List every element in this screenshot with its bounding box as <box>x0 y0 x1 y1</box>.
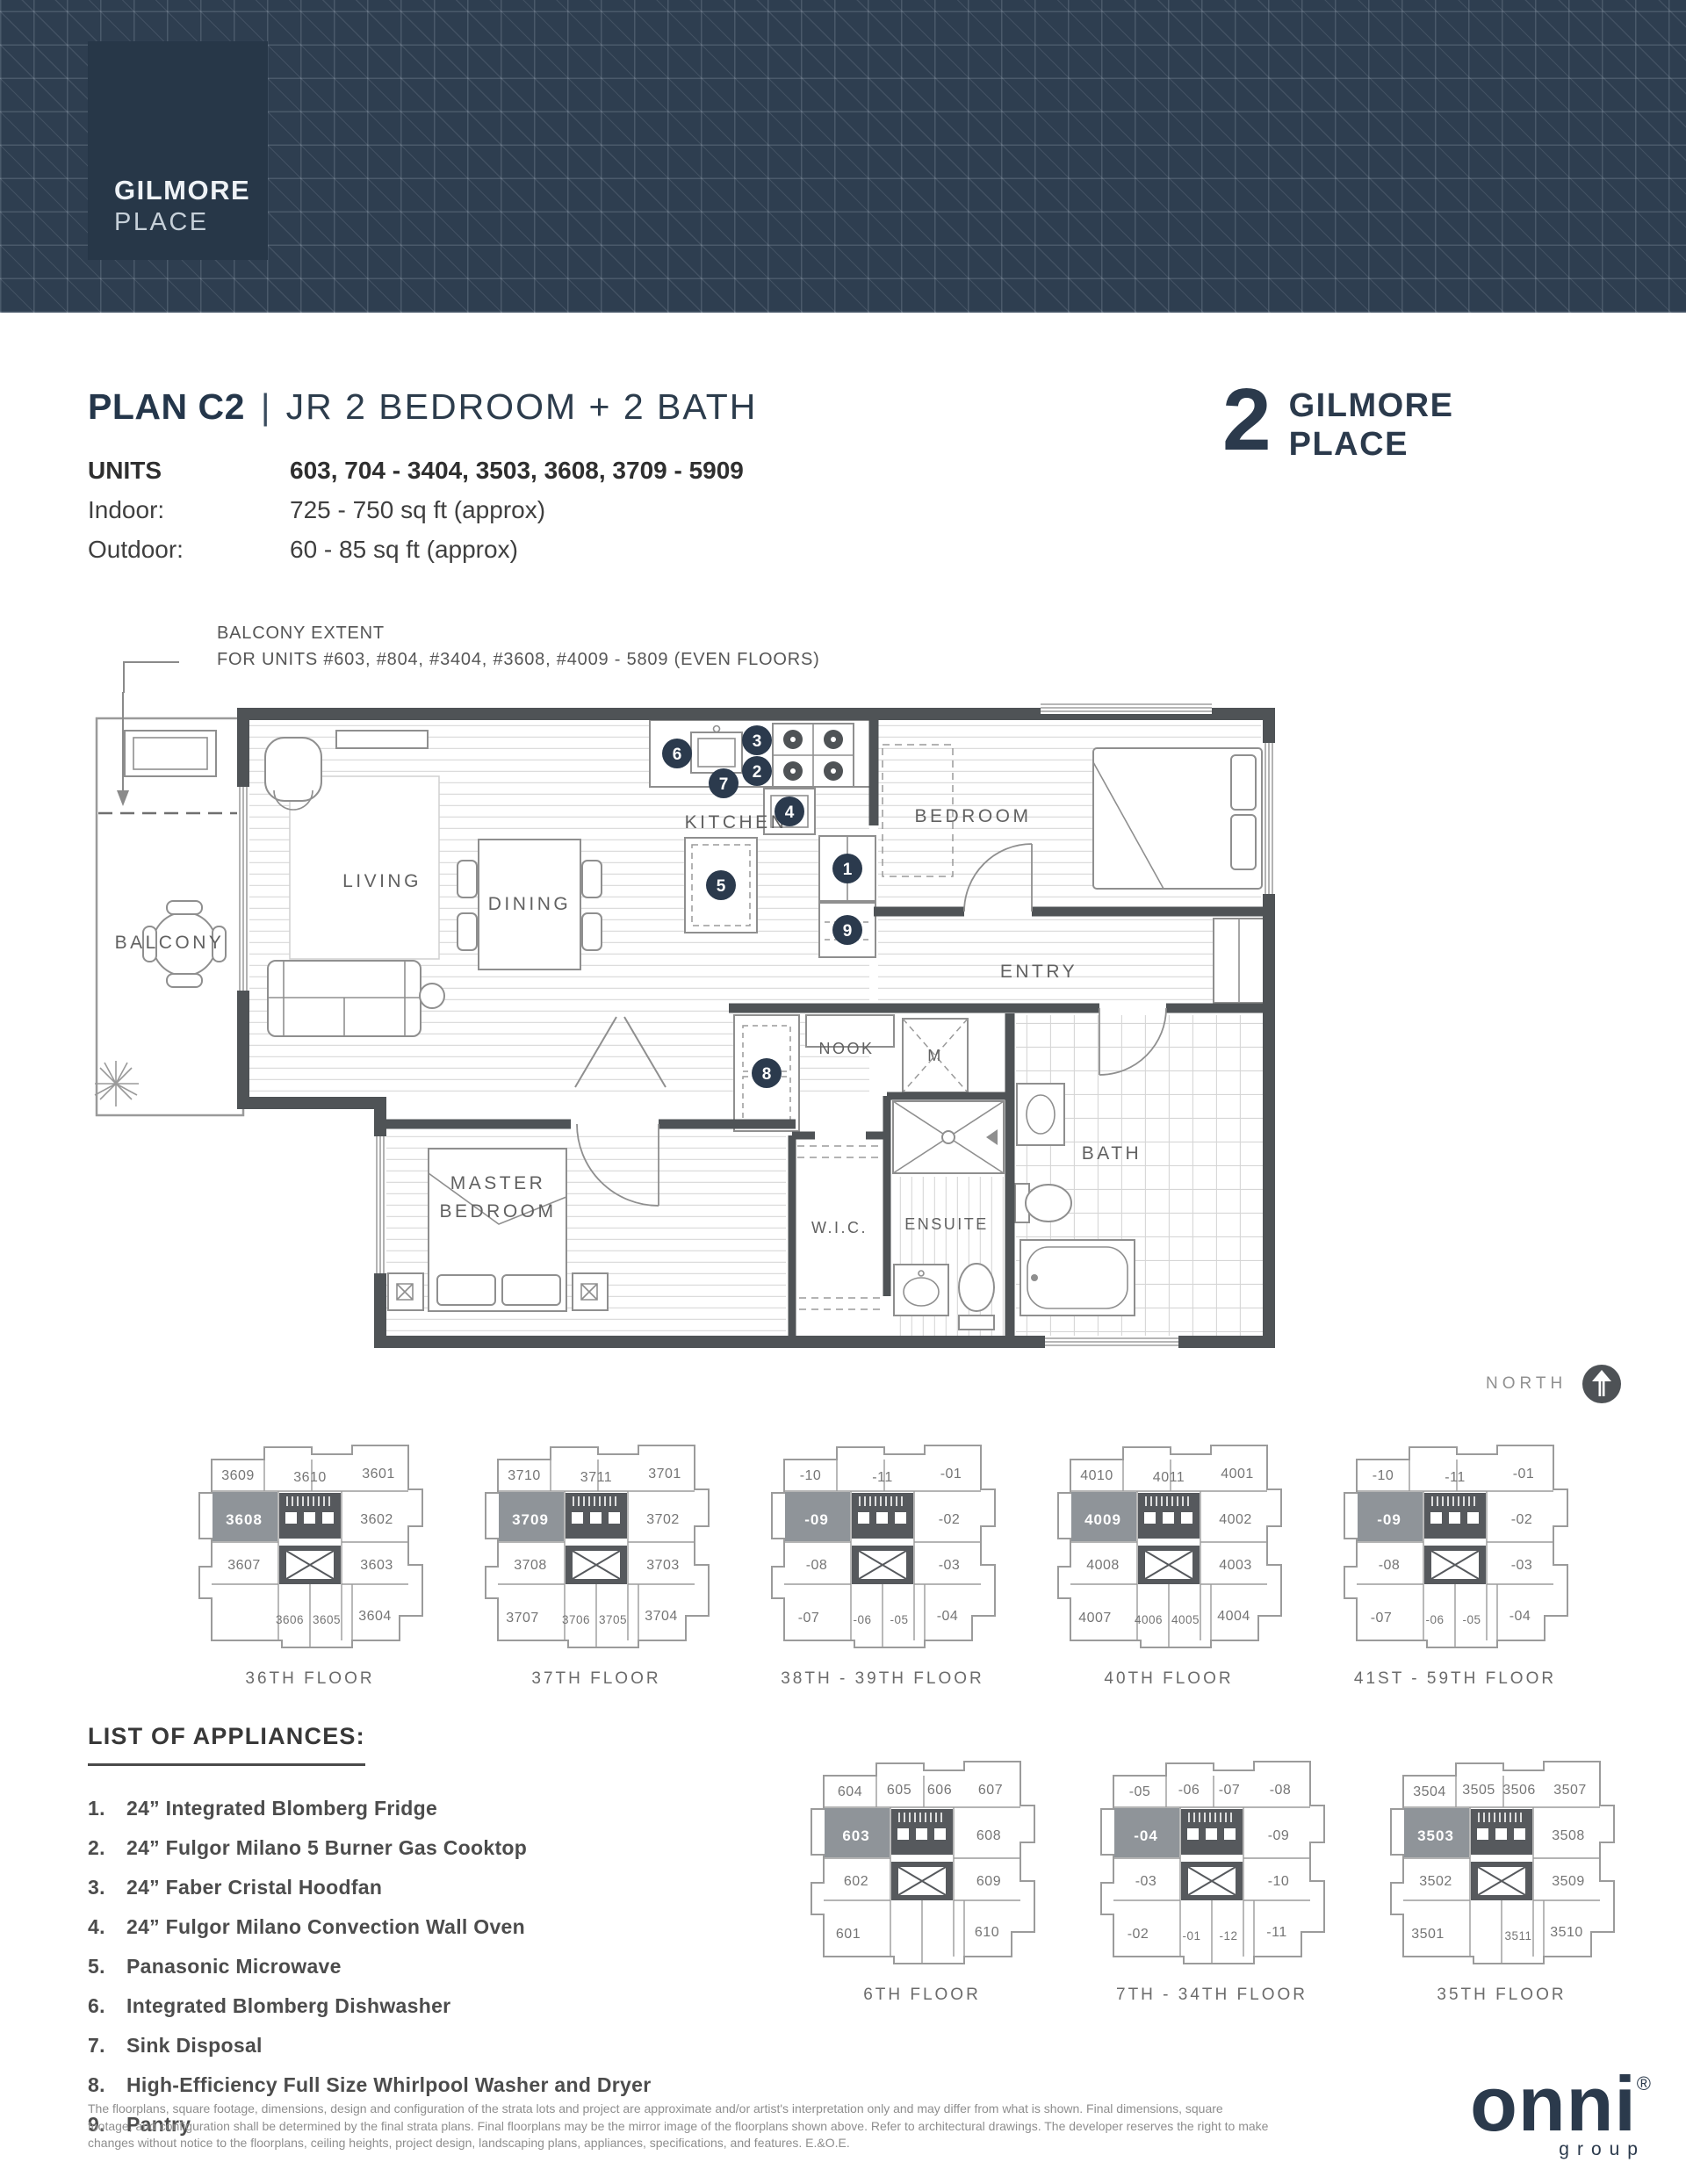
keyplan-floor-label: 35TH FLOOR <box>1370 1986 1633 2005</box>
dining-chair <box>582 861 602 897</box>
room-label-master-1: MASTER <box>450 1173 546 1193</box>
appliance-item: 4.24” Fulgor Milano Convection Wall Oven <box>88 1907 773 1947</box>
keyplan-unit-label: 4006 <box>1135 1613 1163 1626</box>
indoor-label: Indoor: <box>88 496 290 524</box>
room-label-dining: DINING <box>488 894 572 914</box>
north-label: NORTH <box>1486 1374 1567 1394</box>
keyplan-unit-label: -07 <box>1371 1611 1393 1625</box>
keyplan-unit-label: 4002 <box>1219 1512 1252 1527</box>
appliance-list: 1.24” Integrated Blomberg Fridge 2.24” F… <box>88 1789 773 2144</box>
keyplan: -10-11-01-09-02-08-03-07-06-05-0441ST - … <box>1323 1437 1587 1689</box>
keyplan-unit-label: 3610 <box>293 1470 327 1485</box>
keyplan-unit-label: -09 <box>1268 1828 1290 1843</box>
room-label-wic: W.I.C. <box>811 1219 868 1236</box>
keyplan-floor-label: 36TH FLOOR <box>178 1669 442 1689</box>
title-separator: | <box>261 386 270 427</box>
keyplan-unit-label: 3506 <box>1502 1783 1536 1798</box>
dining-chair <box>582 913 602 950</box>
keyplan-svg: -10-11-01-09-02-08-03-07-06-05-04 <box>1323 1437 1587 1654</box>
plan-specs: UNITS 603, 704 - 3404, 3503, 3608, 3709 … <box>88 457 744 575</box>
keyplan-unit-label: 608 <box>976 1828 1001 1843</box>
keyplan-unit-label: -05 <box>1462 1613 1481 1626</box>
ensuite-toilet <box>959 1264 994 1311</box>
keyplan: 6046056066076036086026096016106TH FLOOR <box>790 1753 1054 2005</box>
keyplan-unit-label: 3711 <box>580 1470 612 1485</box>
plan-title: PLAN C2|JR 2 BEDROOM + 2 BATH <box>88 386 757 428</box>
floorplan-sheet: GILMORE PLACE PLAN C2|JR 2 BEDROOM + 2 B… <box>0 0 1686 2184</box>
keyplan-svg: 3609361036013608360236073603360636053604 <box>178 1437 442 1654</box>
plan-name: PLAN C2 <box>88 386 245 427</box>
balcony-chair <box>167 901 202 914</box>
units-row: UNITS 603, 704 - 3404, 3503, 3608, 3709 … <box>88 457 744 485</box>
pillow <box>502 1275 560 1305</box>
appliance-item: 6.Integrated Blomberg Dishwasher <box>88 1986 773 2026</box>
plan-marker-4: 4 <box>775 796 804 826</box>
tower-name-line2: PLACE <box>1289 425 1454 464</box>
keyplan-unit-label: -07 <box>798 1611 820 1625</box>
svg-text:1: 1 <box>843 861 853 879</box>
tower-name-line1: GILMORE <box>1289 386 1454 425</box>
room-label-master-2: BEDROOM <box>439 1201 556 1222</box>
svg-text:5: 5 <box>717 877 726 896</box>
keyplan: 3710371137013709370237083703370737063705… <box>465 1437 728 1689</box>
north-arrow-icon <box>1581 1363 1623 1405</box>
units-value: 603, 704 - 3404, 3503, 3608, 3709 - 5909 <box>290 457 744 485</box>
keyplan: -05-06-07-08-04-09-03-10-02-01-12-117TH … <box>1080 1753 1344 2005</box>
plan-marker-6: 6 <box>662 739 692 768</box>
keyplan-unit-label: -04 <box>937 1609 959 1624</box>
keyplan-unit-label: 4010 <box>1080 1468 1113 1483</box>
keyplan-unit-label: 3706 <box>562 1613 590 1626</box>
appliance-item: 7.Sink Disposal <box>88 2026 773 2065</box>
balcony-note-line1: BALCONY EXTENT <box>217 620 820 646</box>
appliance-item: 1.24” Integrated Blomberg Fridge <box>88 1789 773 1828</box>
svg-text:2: 2 <box>753 763 762 782</box>
logo-line1: GILMORE <box>114 175 268 206</box>
keyplan-unit-label: -10 <box>1373 1468 1394 1483</box>
area-rug <box>290 776 439 959</box>
keyplan-unit-label: 604 <box>838 1784 862 1799</box>
appliance-item: 2.24” Fulgor Milano 5 Burner Gas Cooktop <box>88 1828 773 1868</box>
dining-chair <box>458 913 477 950</box>
room-label-bath: BATH <box>1082 1143 1142 1164</box>
keyplan-unit-label: 3608 <box>226 1511 263 1528</box>
side-table <box>420 984 444 1008</box>
plan-marker-9: 9 <box>832 915 862 945</box>
keyplan-unit-label: -06 <box>1425 1613 1444 1626</box>
keyplan-row-upper: 3609361036013608360236073603360636053604… <box>0 1437 1686 1689</box>
room-label-nook: NOOK <box>818 1040 874 1057</box>
keyplan-unit-label: -11 <box>1266 1925 1286 1940</box>
keyplan-unit-label: 3707 <box>506 1611 539 1625</box>
plan-marker-1: 1 <box>832 854 862 883</box>
keyplan-unit-label: 602 <box>844 1874 868 1889</box>
pillow <box>1231 755 1256 810</box>
media-console <box>336 731 428 748</box>
appliance-item: 8.High-Efficiency Full Size Whirlpool Wa… <box>88 2065 773 2105</box>
svg-text:9: 9 <box>843 922 853 941</box>
keyplan-floor-label: 41ST - 59TH FLOOR <box>1323 1669 1587 1689</box>
plan-marker-8: 8 <box>752 1058 782 1088</box>
keyplan-unit-label: 3604 <box>358 1609 392 1624</box>
keyplan-unit-label: 3602 <box>360 1512 393 1527</box>
registered-mark: ® <box>1637 2072 1651 2094</box>
keyplan-unit-label: 4005 <box>1171 1613 1200 1626</box>
keyplan-unit-label: -02 <box>1511 1512 1533 1527</box>
balcony-note: BALCONY EXTENT FOR UNITS #603, #804, #34… <box>217 620 820 673</box>
keyplan-unit-label: -08 <box>1270 1783 1292 1798</box>
svg-text:6: 6 <box>673 746 682 764</box>
keyplan-svg: 4010401140014009400240084003400740064005… <box>1037 1437 1301 1654</box>
keyplan-unit-label: -08 <box>806 1558 828 1573</box>
outdoor-label: Outdoor: <box>88 536 290 564</box>
svg-text:8: 8 <box>762 1065 772 1084</box>
keyplan-svg: 3710371137013709370237083703370737063705… <box>465 1437 728 1654</box>
appliance-list-section: LIST OF APPLIANCES: 1.24” Integrated Blo… <box>88 1723 773 2144</box>
plan-marker-2: 2 <box>742 756 772 786</box>
keyplan-unit-label: 4001 <box>1221 1467 1254 1481</box>
balcony-note-leader <box>123 661 179 693</box>
keyplan-svg: 3504350535063507350335083502350935013511… <box>1370 1753 1633 1971</box>
keyplan-unit-label: -12 <box>1219 1929 1237 1943</box>
units-label: UNITS <box>88 457 290 485</box>
keyplan-unit-label: 3507 <box>1553 1783 1587 1798</box>
keyplan-unit-label: 3504 <box>1413 1784 1446 1799</box>
keyplan-unit-label: -11 <box>1445 1470 1465 1485</box>
appliance-item: 3.24” Faber Cristal Hoodfan <box>88 1868 773 1907</box>
balcony-chair <box>167 974 202 987</box>
keyplan-unit-label: 3705 <box>599 1613 627 1626</box>
keyplan-unit-label: 3502 <box>1419 1874 1452 1889</box>
keyplan-unit-label: -03 <box>1135 1874 1157 1889</box>
plan-marker-7: 7 <box>709 768 739 798</box>
keyplan-unit-label: -01 <box>940 1467 962 1481</box>
keyplan-unit-label: 609 <box>976 1874 1001 1889</box>
keyplan-unit-label: 605 <box>887 1783 911 1798</box>
room-label-entry: ENTRY <box>1000 962 1077 982</box>
room-label-living: LIVING <box>342 871 421 891</box>
keyplan-svg: 604605606607603608602609601610 <box>790 1753 1054 1971</box>
plan-type: JR 2 BEDROOM + 2 BATH <box>286 386 758 427</box>
keyplan-unit-label: 3503 <box>1417 1827 1454 1844</box>
keyplan-unit-label: 4004 <box>1217 1609 1250 1624</box>
keyplan-unit-label: 3510 <box>1550 1925 1583 1940</box>
keyplan-unit-label: 4003 <box>1219 1558 1252 1573</box>
keyplan-svg: -10-11-01-09-02-08-03-07-06-05-04 <box>751 1437 1014 1654</box>
keyplan-unit-label: 3703 <box>646 1558 680 1573</box>
keyplan-unit-label: 606 <box>927 1783 952 1798</box>
keyplan-unit-label: 3601 <box>362 1467 395 1481</box>
keyplan-unit-label: 3505 <box>1462 1783 1495 1798</box>
keyplan-unit-label: 3708 <box>514 1558 547 1573</box>
tower-mark: 2 GILMORE PLACE <box>1222 383 1453 464</box>
keyplan-unit-label: 3702 <box>646 1512 680 1527</box>
onni-logo: onni <box>1470 2060 1637 2147</box>
room-label-balcony: BALCONY <box>115 933 225 953</box>
keyplan-unit-label: -02 <box>1128 1927 1149 1942</box>
keyplan-unit-label: 4008 <box>1086 1558 1120 1573</box>
keyplan: 4010401140014009400240084003400740064005… <box>1037 1437 1301 1689</box>
svg-text:7: 7 <box>719 775 729 794</box>
balcony-note-line2: FOR UNITS #603, #804, #3404, #3608, #400… <box>217 646 820 673</box>
keyplan-floor-label: 37TH FLOOR <box>465 1669 728 1689</box>
keyplan-floor-label: 38TH - 39TH FLOOR <box>751 1669 1014 1689</box>
logo-line2: PLACE <box>114 208 268 237</box>
keyplan-unit-label: 3605 <box>313 1613 341 1626</box>
keyplan-unit-label: 601 <box>836 1927 861 1942</box>
balcony-area <box>95 692 243 1115</box>
keyplan: -10-11-01-09-02-08-03-07-06-05-0438TH - … <box>751 1437 1014 1689</box>
keyplan-unit-label: 603 <box>842 1827 869 1844</box>
keyplan-unit-label: 3511 <box>1504 1929 1531 1943</box>
keyplan-unit-label: 607 <box>978 1783 1003 1798</box>
keyplan-unit-label: 610 <box>975 1925 999 1940</box>
keyplan-unit-label: 4011 <box>1153 1470 1185 1485</box>
keyplan-floor-label: 6TH FLOOR <box>790 1986 1054 2005</box>
header-banner: GILMORE PLACE <box>0 0 1686 313</box>
keyplan-unit-label: 3710 <box>508 1468 541 1483</box>
keyplan-unit-label: 3509 <box>1552 1874 1585 1889</box>
keyplan-unit-label: 3501 <box>1411 1927 1445 1942</box>
keyplan-unit-label: 3603 <box>360 1558 393 1573</box>
keyplan-unit-label: -10 <box>1268 1874 1290 1889</box>
keyplan-unit-label: -09 <box>1377 1511 1401 1528</box>
dining-chair <box>458 861 477 897</box>
developer-logo: onni® group <box>1335 2072 1651 2160</box>
keyplan-unit-label: -04 <box>1134 1827 1158 1844</box>
keyplan-unit-label: -08 <box>1379 1558 1401 1573</box>
room-label-mech: M <box>927 1047 943 1064</box>
pillow <box>437 1275 495 1305</box>
plan-marker-5: 5 <box>706 870 736 900</box>
keyplan-unit-label: 4009 <box>1084 1511 1121 1528</box>
tower-name: GILMORE PLACE <box>1289 383 1454 464</box>
keyplan-unit-label: -06 <box>1178 1783 1200 1798</box>
keyplan-unit-label: -03 <box>1511 1558 1533 1573</box>
keyplan: 3504350535063507350335083502350935013511… <box>1370 1753 1633 2005</box>
keyplan-unit-label: -03 <box>939 1558 961 1573</box>
keyplan-unit-label: -07 <box>1219 1783 1241 1798</box>
svg-text:3: 3 <box>753 732 762 751</box>
ensuite-vanity <box>894 1265 948 1315</box>
keyplan-unit-label: 3704 <box>645 1609 678 1624</box>
keyplan-unit-label: 3709 <box>512 1511 549 1528</box>
keyplan-unit-label: -05 <box>1129 1784 1151 1799</box>
keyplan-unit-label: -10 <box>800 1468 822 1483</box>
room-label-ensuite: ENSUITE <box>904 1215 989 1233</box>
keyplan-unit-label: 3701 <box>648 1467 681 1481</box>
keyplan: 3609361036013608360236073603360636053604… <box>178 1437 442 1689</box>
keyplan-unit-label: 4007 <box>1078 1611 1112 1625</box>
keyplan-unit-label: 3508 <box>1552 1828 1585 1843</box>
plan-marker-3: 3 <box>742 725 772 755</box>
room-label-kitchen: KITCHEN <box>685 812 788 833</box>
north-indicator: NORTH <box>1486 1363 1623 1405</box>
bath-toilet <box>1026 1185 1071 1222</box>
keyplan-unit-label: -01 <box>1513 1467 1535 1481</box>
keyplan-svg: -05-06-07-08-04-09-03-10-02-01-12-11 <box>1080 1753 1344 1971</box>
keyplan-unit-label: 3606 <box>276 1613 304 1626</box>
room-label-bedroom: BEDROOM <box>914 806 1031 826</box>
keyplan-unit-label: -11 <box>872 1470 892 1485</box>
appliance-heading: LIST OF APPLIANCES: <box>88 1723 365 1766</box>
keyplan-unit-label: -09 <box>804 1511 829 1528</box>
gilmore-place-logo: GILMORE PLACE <box>88 41 268 260</box>
keyplan-unit-label: 3607 <box>227 1558 261 1573</box>
keyplan-unit-label: -01 <box>1182 1929 1200 1943</box>
tower-number: 2 <box>1222 383 1272 457</box>
appliance-item: 5.Panasonic Microwave <box>88 1947 773 1986</box>
svg-text:4: 4 <box>785 804 795 822</box>
outdoor-value: 60 - 85 sq ft (approx) <box>290 536 518 564</box>
outdoor-row: Outdoor: 60 - 85 sq ft (approx) <box>88 536 744 564</box>
indoor-row: Indoor: 725 - 750 sq ft (approx) <box>88 496 744 524</box>
bath-vanity <box>1017 1084 1064 1145</box>
keyplan-unit-label: -04 <box>1509 1609 1531 1624</box>
keyplan-unit-label: 3609 <box>221 1468 255 1483</box>
keyplan-unit-label: -02 <box>939 1512 961 1527</box>
keyplan-floor-label: 7TH - 34TH FLOOR <box>1080 1986 1344 2005</box>
pillow <box>1231 815 1256 869</box>
keyplan-unit-label: -05 <box>890 1613 908 1626</box>
indoor-value: 725 - 750 sq ft (approx) <box>290 496 545 524</box>
keyplan-row-lower: 6046056066076036086026096016106TH FLOOR-… <box>790 1753 1633 2005</box>
keyplan-floor-label: 40TH FLOOR <box>1037 1669 1301 1689</box>
unit-floorplan: BALCONY LIVING DINING KITCHEN BEDROOM EN… <box>79 692 1282 1395</box>
keyplan-unit-label: -06 <box>853 1613 871 1626</box>
legal-disclaimer: The floorplans, square footage, dimensio… <box>88 2101 1269 2152</box>
